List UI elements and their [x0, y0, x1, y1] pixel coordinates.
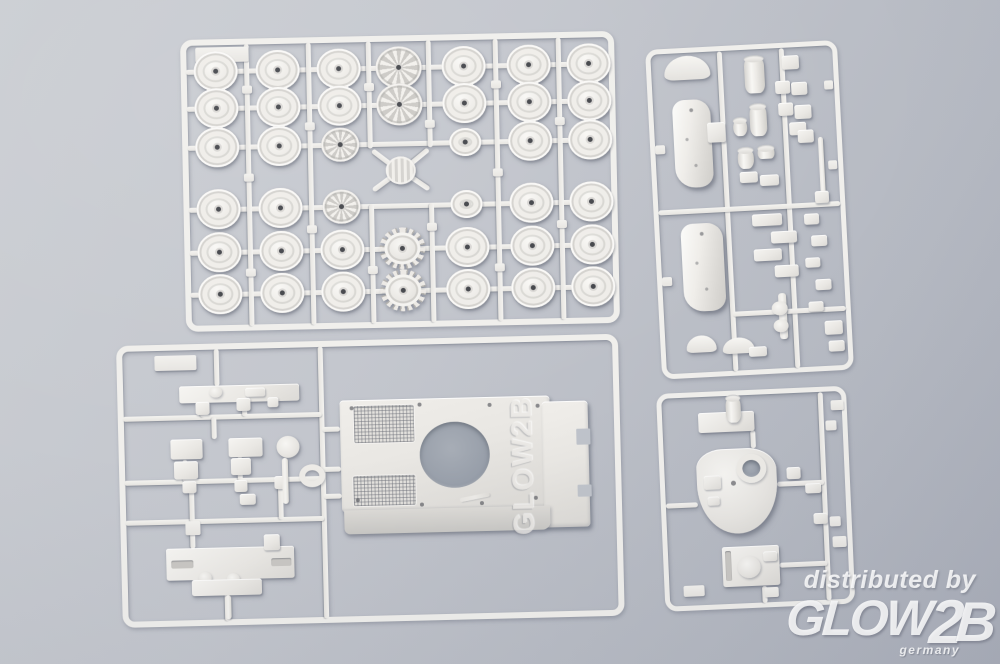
wheel-hub — [216, 207, 221, 212]
wheel-hub — [530, 243, 535, 248]
part-cyl — [733, 119, 748, 137]
wheel-hub — [336, 66, 341, 71]
photo-model-kit-sprues: GLOW2B distributed by GLOW2B germany — [0, 0, 1000, 664]
part-rect — [828, 340, 845, 352]
wheel-hub — [589, 199, 594, 204]
part-rect — [182, 481, 196, 493]
wheel-hub — [217, 250, 222, 255]
part-rect — [813, 513, 827, 525]
part-rect — [811, 235, 828, 247]
part-rect — [236, 398, 250, 411]
ejector-tab — [425, 119, 435, 127]
sprue-runner — [750, 430, 756, 448]
sprue-runner — [323, 466, 341, 471]
wheel-sprue — [180, 31, 620, 332]
sprue-label-tab — [154, 355, 196, 371]
ejector-tab — [242, 85, 252, 93]
part-rect — [781, 55, 799, 70]
part-rect — [234, 480, 247, 492]
part-rect — [749, 346, 767, 357]
drive-sprocket-center — [385, 274, 422, 307]
part-tab — [830, 516, 841, 526]
part-dot — [420, 503, 424, 507]
exhaust-pipe — [749, 105, 768, 137]
part-dot — [350, 406, 354, 410]
part-rect — [708, 496, 720, 506]
engine-grille — [354, 405, 415, 443]
drive-sprocket-center — [384, 232, 421, 265]
part-rect — [240, 494, 256, 505]
ejector-tab — [364, 82, 374, 90]
part-tab — [683, 585, 704, 597]
part-rect — [808, 301, 824, 312]
wheel-hub — [465, 244, 470, 249]
turret-sprue — [656, 386, 855, 612]
bracket-part — [170, 439, 202, 460]
part-rect — [267, 397, 278, 407]
part-dot — [488, 403, 492, 407]
part-rect — [778, 102, 794, 116]
ejector-tab — [246, 268, 256, 276]
ejector-tab — [493, 168, 503, 176]
part-tab — [765, 587, 779, 598]
wheel-hub — [341, 289, 346, 294]
wheel-hub — [277, 143, 282, 148]
ejector-tab — [244, 173, 254, 181]
part-rect — [774, 264, 799, 277]
part-rect — [245, 387, 265, 396]
part-tab — [185, 521, 200, 535]
part-rect — [786, 467, 801, 480]
part-rect — [231, 458, 251, 475]
wheel-hub — [462, 101, 467, 106]
ejector-tab — [491, 80, 501, 88]
watermark-logo-b: B — [953, 590, 996, 653]
part-rect — [763, 551, 777, 562]
part-rect — [805, 483, 821, 494]
wheel-hub — [400, 246, 405, 251]
upper-hull-sprue: GLOW2B — [116, 334, 625, 628]
part-rect — [707, 122, 726, 143]
wheel-hub — [587, 98, 592, 103]
ejector-tab — [427, 222, 437, 230]
part-cyl — [757, 146, 775, 159]
part-slot — [271, 558, 291, 566]
wheel-hub — [463, 139, 468, 144]
wheel-hub — [526, 62, 531, 67]
ejector-tab — [368, 266, 378, 274]
wheel-hub — [528, 138, 533, 143]
wheel-hub — [337, 103, 342, 108]
engine-grille — [353, 475, 416, 507]
part-rect — [740, 171, 759, 183]
part-rod — [282, 458, 289, 504]
part-tab — [830, 400, 843, 411]
wheel-hub — [586, 61, 591, 66]
part-tab — [828, 160, 837, 169]
part-rect — [771, 230, 798, 243]
wheel-hub — [278, 205, 283, 210]
watermark-logo: GLOW2B — [784, 598, 996, 648]
embossed-logo-watermark: GLOW2B — [502, 405, 545, 536]
part-rect — [754, 248, 783, 261]
part-rect — [775, 80, 791, 94]
wheel-hub — [591, 284, 596, 289]
part-rect — [704, 475, 722, 490]
sprue-runner — [324, 493, 342, 498]
part-tab — [655, 145, 665, 155]
wheel-hub — [464, 201, 469, 206]
part-rect — [760, 174, 780, 186]
part-dot — [480, 501, 484, 505]
part-rect — [815, 191, 830, 204]
part-cyl — [737, 148, 754, 169]
watermark-germany: germany — [786, 643, 960, 657]
exhaust-pipe — [744, 57, 766, 94]
part-rect — [752, 213, 783, 227]
ejector-tab — [495, 263, 505, 271]
wheel-hub — [588, 137, 593, 142]
part-slot — [725, 551, 732, 581]
part-tab — [825, 420, 836, 430]
wheel-hub — [214, 106, 219, 111]
part-rect — [815, 279, 832, 291]
wheel-hub — [338, 142, 343, 147]
wheel-hub — [527, 99, 532, 104]
part-dot — [417, 403, 421, 407]
ejector-tab — [555, 116, 565, 124]
wheel-hub — [340, 247, 345, 252]
watermark-logo-2: 2 — [927, 588, 962, 657]
part-tab — [662, 277, 672, 287]
hull-side-panel — [680, 222, 727, 312]
sprue-runner — [322, 426, 340, 431]
wheel-hub — [461, 64, 466, 69]
hull-side-panel — [672, 99, 715, 189]
wheel-hub — [279, 248, 284, 253]
part-rect — [804, 213, 820, 225]
wheel-hub — [396, 65, 401, 70]
sprue-runner — [214, 348, 220, 385]
wheel-hub — [401, 288, 406, 293]
part-rect — [174, 461, 198, 480]
part-rect — [805, 257, 821, 268]
ejector-tab — [305, 122, 315, 130]
part-rect — [791, 82, 808, 96]
part-rect — [794, 104, 812, 119]
wheel-hub — [397, 102, 402, 107]
gun-mount-cylinder — [725, 396, 741, 423]
part-rect — [264, 534, 280, 550]
part-tab — [832, 536, 846, 548]
wheel-hub — [276, 104, 281, 109]
wheel-hub — [215, 145, 220, 150]
wheel-hub — [280, 290, 285, 295]
part-rect — [824, 320, 843, 335]
wheel-hub — [213, 69, 218, 74]
ejector-tab — [557, 219, 567, 227]
detail-parts-sprue — [645, 40, 854, 380]
part-notch — [576, 428, 590, 444]
part-tab — [824, 80, 833, 89]
wheel-hub — [466, 286, 471, 291]
part-rect — [195, 402, 209, 415]
part-rect — [192, 579, 262, 597]
bracket-part — [228, 437, 262, 457]
part-slot — [171, 560, 193, 569]
wheel-hub — [590, 242, 595, 247]
part-notch — [578, 484, 592, 496]
wheel-hub — [275, 67, 280, 72]
ejector-tab — [307, 225, 317, 233]
wheel-hub — [339, 204, 344, 209]
wheel-hub — [218, 292, 223, 297]
sprue-runner — [211, 417, 217, 439]
wheel-hub — [529, 200, 534, 205]
wheel-hub — [531, 285, 536, 290]
part-rod — [225, 595, 232, 619]
part-dot — [356, 498, 360, 502]
part-rect — [797, 129, 814, 143]
